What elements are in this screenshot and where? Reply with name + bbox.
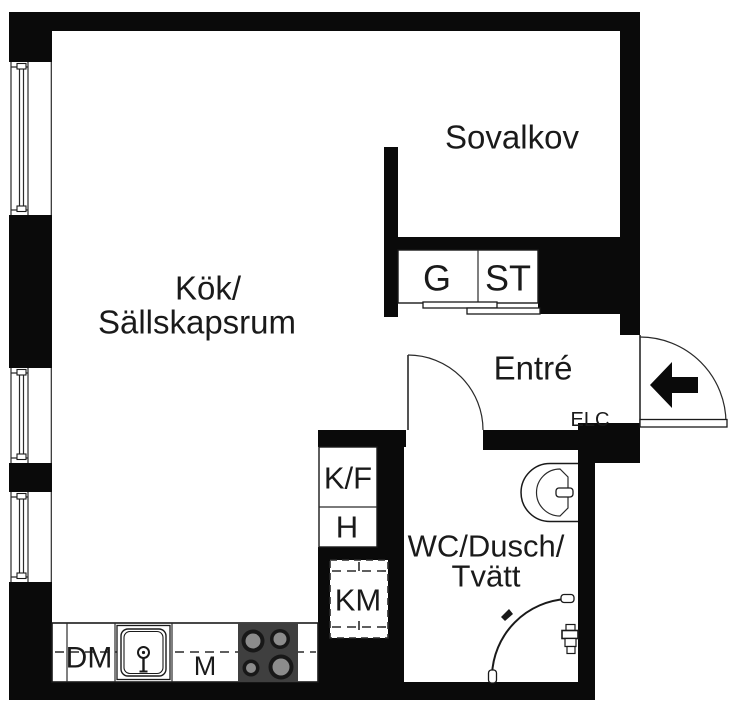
wall-alcove-bottom	[393, 237, 640, 250]
dishwasher-label: DM	[66, 642, 113, 675]
window-1-cap-top	[17, 64, 26, 70]
wall-right-lower	[578, 463, 595, 682]
entry-label: Entré	[494, 350, 573, 387]
kitchen-sink	[117, 626, 170, 680]
window-2	[10, 368, 52, 463]
floor-plan: Kök/ Sällskapsrum Sovalkov G ST Entré EL…	[0, 0, 741, 716]
wall-h-km-divider	[318, 547, 404, 560]
sink-tap	[556, 488, 573, 497]
kitchen-label-line1: Kök/	[175, 270, 242, 307]
window-2-cap-top	[17, 370, 26, 376]
entrance-arrow-icon	[650, 362, 698, 408]
hose-connector	[501, 609, 513, 621]
door-bathroom	[408, 355, 483, 430]
door-leaf	[640, 420, 727, 428]
shower-mixer	[562, 625, 578, 654]
elc-label: ELC	[571, 409, 610, 431]
bathroom-label-line2: Tvätt	[452, 559, 521, 594]
shelf-label: H	[336, 510, 358, 545]
window-1-cap-bottom	[17, 206, 26, 212]
closet-st-label: ST	[485, 258, 531, 299]
floor-plan-page: Kök/ Sällskapsrum Sovalkov G ST Entré EL…	[0, 0, 741, 716]
bathroom-sink	[521, 464, 578, 522]
wall-alcove-stub	[384, 147, 398, 317]
wall-bottom	[9, 682, 595, 700]
sliding-door-2	[467, 308, 540, 314]
sliding-door-1	[423, 302, 497, 308]
wall-closet-right-block	[538, 250, 620, 314]
wall-closet-column	[377, 430, 404, 565]
wall-km-left	[318, 558, 330, 645]
wall-top	[9, 12, 640, 31]
washing-machine-label: KM	[335, 583, 382, 618]
door-entrance	[640, 335, 727, 427]
window-1	[10, 62, 52, 215]
wall-top-left-corner	[9, 12, 52, 62]
window-3-cap-bottom	[17, 573, 26, 579]
window-3	[10, 492, 52, 582]
sleeping-alcove-label: Sovalkov	[445, 119, 579, 156]
shower	[489, 595, 579, 684]
wall-left-pier-1	[9, 215, 52, 368]
wall-right-upper	[620, 12, 640, 335]
window-2-cap-bottom	[17, 454, 26, 460]
stove	[238, 623, 298, 682]
closet-g-label: G	[423, 258, 451, 299]
wall-above-kf	[318, 430, 406, 447]
m-label: M	[194, 651, 217, 681]
window-3-cap-top	[17, 494, 26, 500]
wall-below-km	[318, 638, 404, 682]
fridge-freezer-label: K/F	[324, 461, 372, 496]
wall-left-pier-2	[9, 463, 52, 492]
kitchen-label-line2: Sällskapsrum	[98, 304, 296, 341]
